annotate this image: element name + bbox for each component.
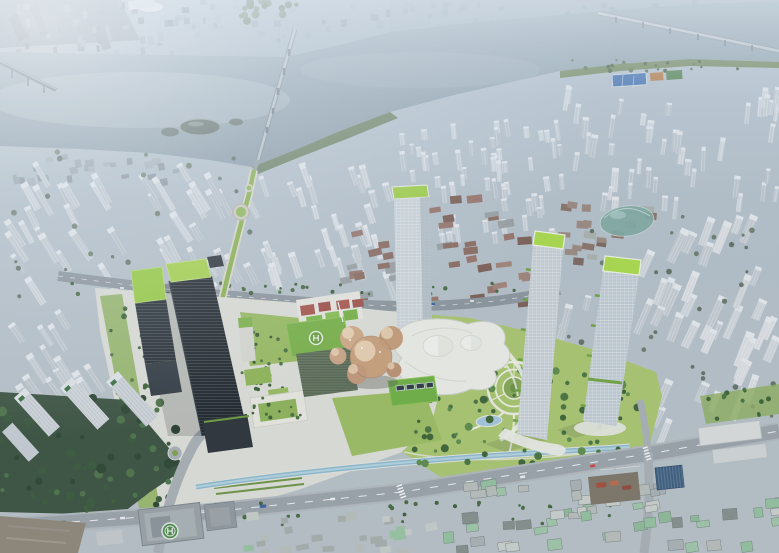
layer-atmosphere [0,0,779,553]
aerial-photo [0,0,779,553]
aerial-render-svg [0,0,779,553]
cool-tint [0,0,779,553]
scene-root [0,0,779,553]
